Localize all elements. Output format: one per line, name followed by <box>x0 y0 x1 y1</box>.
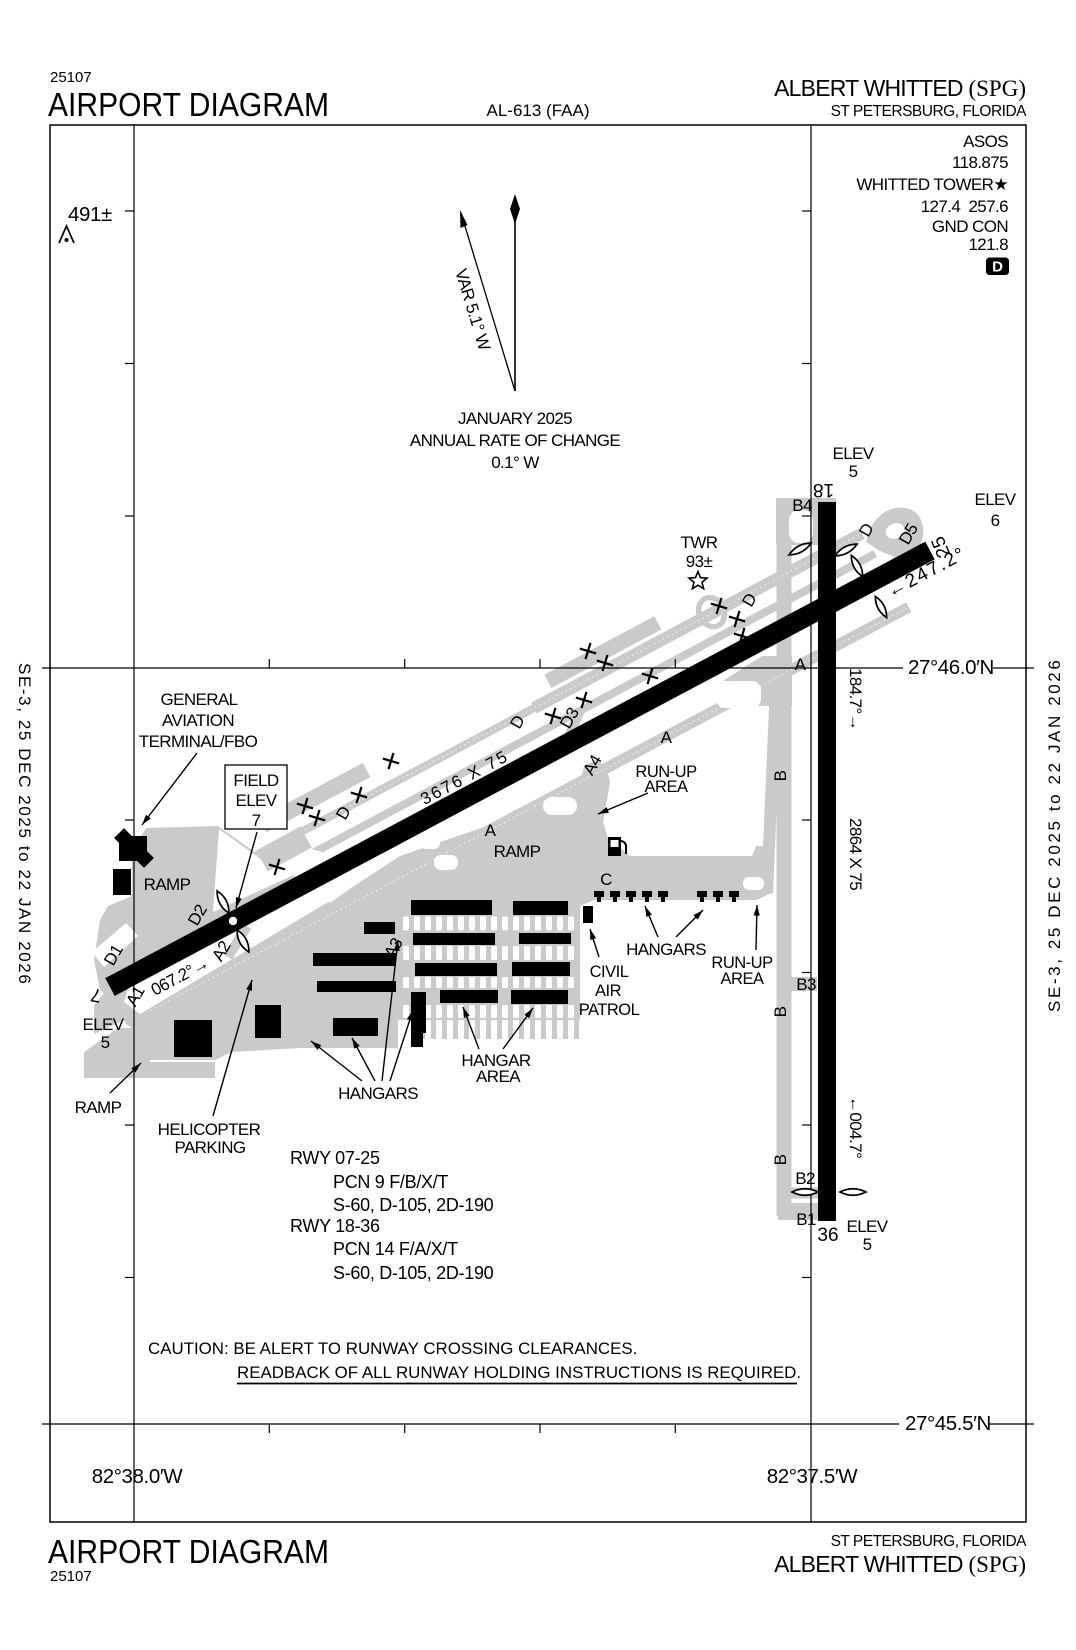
svg-text:←004.7°: ←004.7° <box>846 1096 865 1158</box>
svg-text:VAR 5.1° W: VAR 5.1° W <box>451 267 494 353</box>
svg-text:RWY 07-25: RWY 07-25 <box>290 1148 380 1168</box>
svg-text:SE-3, 25 DEC 2025 to 22 JAN 20: SE-3, 25 DEC 2025 to 22 JAN 2026 <box>1045 658 1064 1012</box>
svg-text:18: 18 <box>813 479 834 500</box>
svg-text:TERMINAL/FBO: TERMINAL/FBO <box>139 732 258 751</box>
svg-text:93±: 93± <box>686 552 713 571</box>
svg-text:121.8: 121.8 <box>968 235 1008 254</box>
svg-text:CIVIL: CIVIL <box>590 963 629 981</box>
svg-text:25107: 25107 <box>50 1568 92 1585</box>
svg-text:AREA: AREA <box>721 970 764 988</box>
svg-text:AREA: AREA <box>645 778 688 796</box>
svg-text:ELEV: ELEV <box>832 444 874 463</box>
svg-text:ST PETERSBURG, FLORIDA: ST PETERSBURG, FLORIDA <box>831 1533 1028 1550</box>
svg-text:0.1° W: 0.1° W <box>491 453 539 472</box>
svg-text:AL-613 (FAA): AL-613 (FAA) <box>487 101 590 120</box>
svg-text:82°38.0′W: 82°38.0′W <box>92 1465 184 1488</box>
svg-text:5: 5 <box>863 1235 872 1254</box>
svg-text:D: D <box>992 259 1003 276</box>
svg-text:491±: 491± <box>68 203 112 226</box>
svg-text:AIRPORT DIAGRAM: AIRPORT DIAGRAM <box>48 1533 329 1570</box>
svg-text:ST PETERSBURG, FLORIDA: ST PETERSBURG, FLORIDA <box>831 103 1028 120</box>
svg-text:ELEV: ELEV <box>82 1015 124 1034</box>
svg-text:RAMP: RAMP <box>75 1098 122 1117</box>
svg-text:RAMP: RAMP <box>494 842 541 861</box>
svg-text:AVIATION: AVIATION <box>162 711 234 730</box>
svg-text:PARKING: PARKING <box>174 1138 245 1157</box>
svg-text:5: 5 <box>101 1033 110 1052</box>
svg-text:SE-3, 25 DEC 2025 to 22 JAN 20: SE-3, 25 DEC 2025 to 22 JAN 2026 <box>15 663 34 985</box>
svg-text:7: 7 <box>89 983 103 1006</box>
svg-text:WHITTED TOWER★: WHITTED TOWER★ <box>856 175 1008 194</box>
svg-text:118.875: 118.875 <box>952 153 1008 172</box>
svg-text:HANGARS: HANGARS <box>626 940 706 959</box>
svg-text:127.4 257.6: 127.4 257.6 <box>921 197 1008 216</box>
svg-text:TWR: TWR <box>681 533 718 552</box>
svg-text:ALBERT WHITTED (SPG): ALBERT WHITTED (SPG) <box>774 1551 1026 1577</box>
svg-text:ASOS: ASOS <box>963 132 1008 151</box>
svg-text:PCN 14 F/A/X/T: PCN 14 F/A/X/T <box>333 1239 458 1259</box>
svg-text:184.7°→: 184.7°→ <box>846 668 865 730</box>
svg-text:FIELD: FIELD <box>233 771 279 790</box>
svg-text:READBACK OF ALL RUNWAY HOLDING: READBACK OF ALL RUNWAY HOLDING INSTRUCTI… <box>237 1363 801 1382</box>
svg-text:7: 7 <box>252 811 261 830</box>
svg-text:HELICOPTER: HELICOPTER <box>158 1120 261 1139</box>
svg-text:S-60, D-105, 2D-190: S-60, D-105, 2D-190 <box>333 1263 494 1283</box>
svg-text:B: B <box>771 1154 790 1165</box>
svg-text:25107: 25107 <box>50 69 92 86</box>
svg-text:RAMP: RAMP <box>144 875 191 894</box>
svg-text:C: C <box>600 870 612 889</box>
svg-text:CAUTION: BE ALERT TO RUNWAY CR: CAUTION: BE ALERT TO RUNWAY CROSSING CLE… <box>148 1339 637 1358</box>
svg-text:B3: B3 <box>796 975 816 994</box>
svg-text:B: B <box>771 770 790 781</box>
svg-text:GENERAL: GENERAL <box>160 690 237 709</box>
svg-text:PATROL: PATROL <box>579 1001 640 1019</box>
svg-text:AIRPORT DIAGRAM: AIRPORT DIAGRAM <box>48 86 329 123</box>
svg-text:ANNUAL RATE OF CHANGE: ANNUAL RATE OF CHANGE <box>410 431 621 450</box>
svg-text:JANUARY 2025: JANUARY 2025 <box>458 409 572 428</box>
svg-text:AIR: AIR <box>595 982 622 1000</box>
svg-text:A: A <box>485 821 497 840</box>
svg-text:36: 36 <box>817 1225 838 1246</box>
svg-text:82°37.5′W: 82°37.5′W <box>767 1465 859 1488</box>
svg-text:27°45.5′N: 27°45.5′N <box>905 1412 991 1435</box>
svg-text:ALBERT WHITTED (SPG): ALBERT WHITTED (SPG) <box>774 75 1026 101</box>
svg-text:B4: B4 <box>792 496 812 515</box>
svg-text:5: 5 <box>849 462 858 481</box>
svg-text:PCN 9 F/B/X/T: PCN 9 F/B/X/T <box>333 1172 448 1192</box>
svg-text:RWY 18-36: RWY 18-36 <box>290 1216 380 1236</box>
svg-text:AREA: AREA <box>476 1067 521 1086</box>
svg-text:A: A <box>661 728 673 747</box>
svg-text:GND CON: GND CON <box>932 217 1008 236</box>
svg-text:B1: B1 <box>796 1210 816 1229</box>
svg-text:ELEV: ELEV <box>974 490 1016 509</box>
svg-text:2864 X 75: 2864 X 75 <box>846 818 865 890</box>
svg-text:B2: B2 <box>795 1169 815 1188</box>
svg-text:27°46.0′N: 27°46.0′N <box>908 656 994 679</box>
svg-text:B: B <box>771 1006 790 1017</box>
svg-text:A: A <box>795 655 807 674</box>
svg-text:S-60, D-105, 2D-190: S-60, D-105, 2D-190 <box>333 1195 494 1215</box>
svg-text:ELEV: ELEV <box>235 791 277 810</box>
svg-text:ELEV: ELEV <box>846 1217 888 1236</box>
svg-text:HANGARS: HANGARS <box>338 1084 418 1103</box>
svg-text:6: 6 <box>991 511 1000 530</box>
